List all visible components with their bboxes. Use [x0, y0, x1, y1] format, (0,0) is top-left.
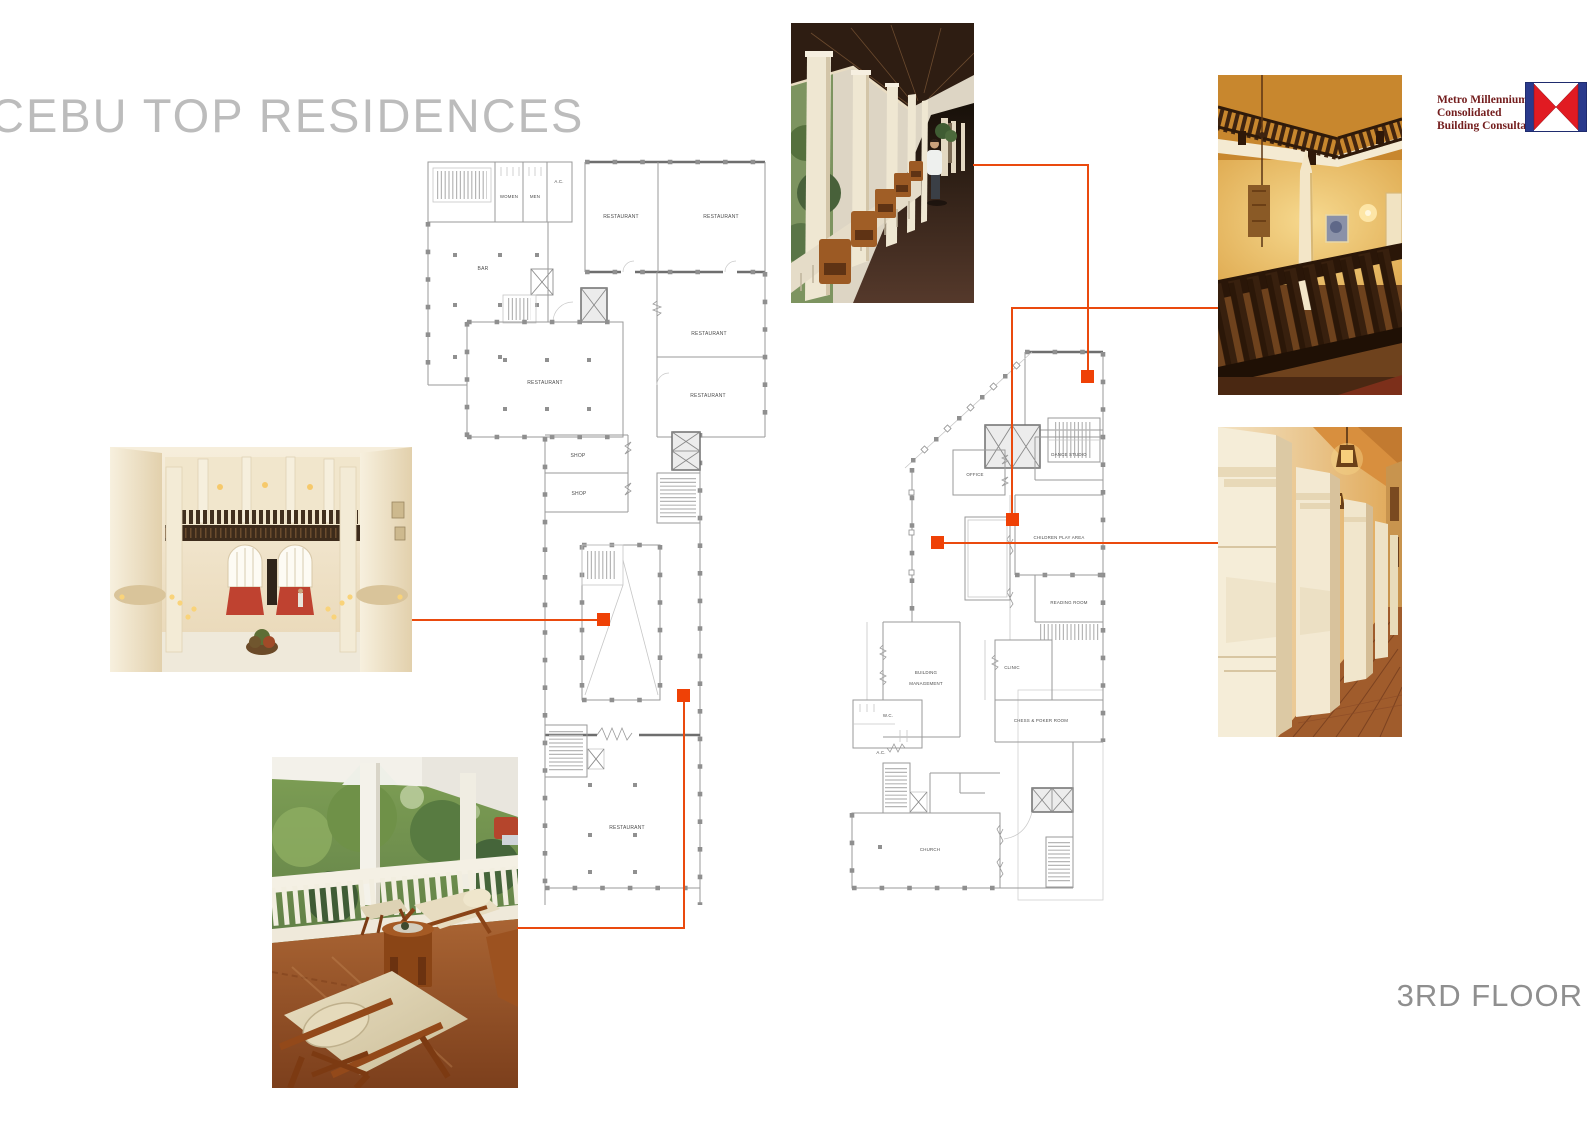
leader-line-veranda-v — [683, 702, 685, 928]
photo-lobby-atrium — [110, 447, 412, 672]
room-label-management: MANAGEMENT — [909, 681, 943, 686]
room-label-ac-right: A.C. — [876, 750, 885, 755]
plan-marker-gallery — [1006, 513, 1019, 526]
room-label-building: BUILDING — [915, 670, 938, 675]
room-label-women: WOMEN — [500, 194, 518, 199]
room-label-restaurant-4: RESTAURANT — [691, 331, 727, 337]
plan-marker-corridor — [1081, 370, 1094, 383]
photo-stair-gallery — [1218, 75, 1402, 395]
room-label-shop-2: SHOP — [572, 491, 587, 497]
room-label-shop-1: SHOP — [571, 453, 586, 459]
room-label-children-play-area: CHILDREN PLAY AREA — [1033, 535, 1084, 540]
plan-marker-columns — [931, 536, 944, 549]
photo-veranda-corridor — [791, 23, 974, 303]
room-label-restaurant-1: RESTAURANT — [603, 214, 639, 220]
presentation-board: CEBU TOP RESIDENCES 3RD FLOOR Metro Mill… — [0, 0, 1587, 1121]
room-label-bar: BAR — [478, 266, 489, 272]
floor-label: 3RD FLOOR — [1397, 978, 1583, 1014]
leader-line-atrium-h — [412, 619, 599, 621]
room-label-chess-poker: CHESS & POKER ROOM — [1014, 718, 1068, 723]
room-label-reading-room: READING ROOM — [1050, 600, 1087, 605]
room-label-church: CHURCH — [920, 847, 940, 852]
leader-line-gallery-h — [1012, 307, 1218, 309]
leader-line-corridor-h — [973, 164, 1089, 166]
page-title: CEBU TOP RESIDENCES — [0, 88, 584, 143]
room-label-restaurant-2: RESTAURANT — [703, 214, 739, 220]
room-label-restaurant-3: RESTAURANT — [527, 380, 563, 386]
room-label-men: MEN — [530, 194, 540, 199]
room-label-restaurant-5: RESTAURANT — [690, 393, 726, 399]
company-logo-icon — [1525, 82, 1587, 132]
plan-marker-atrium — [597, 613, 610, 626]
company-logo: Metro Millennium Consolidated Building C… — [1437, 94, 1565, 133]
photo-veranda-lounge — [272, 757, 518, 1088]
leader-line-veranda-h — [517, 927, 685, 929]
plan-marker-veranda — [677, 689, 690, 702]
room-label-dance-studio: DANCE STUDIO — [1051, 452, 1087, 457]
room-label-clinic: CLINIC — [1004, 665, 1020, 670]
room-label-office: OFFICE — [966, 472, 983, 477]
right-wing-floor-plan: OFFICE DANCE STUDIO CHILDREN PLAY AREA R… — [845, 340, 1110, 910]
leader-line-gallery-v — [1011, 307, 1013, 515]
room-label-restaurant-6: RESTAURANT — [609, 825, 645, 831]
leader-line-columns-h — [943, 542, 1218, 544]
leader-line-corridor-v — [1087, 164, 1089, 372]
room-label-ac: A.C. — [554, 179, 563, 184]
photo-columns-corridor — [1218, 427, 1402, 737]
room-label-wc: W.C. — [883, 713, 893, 718]
